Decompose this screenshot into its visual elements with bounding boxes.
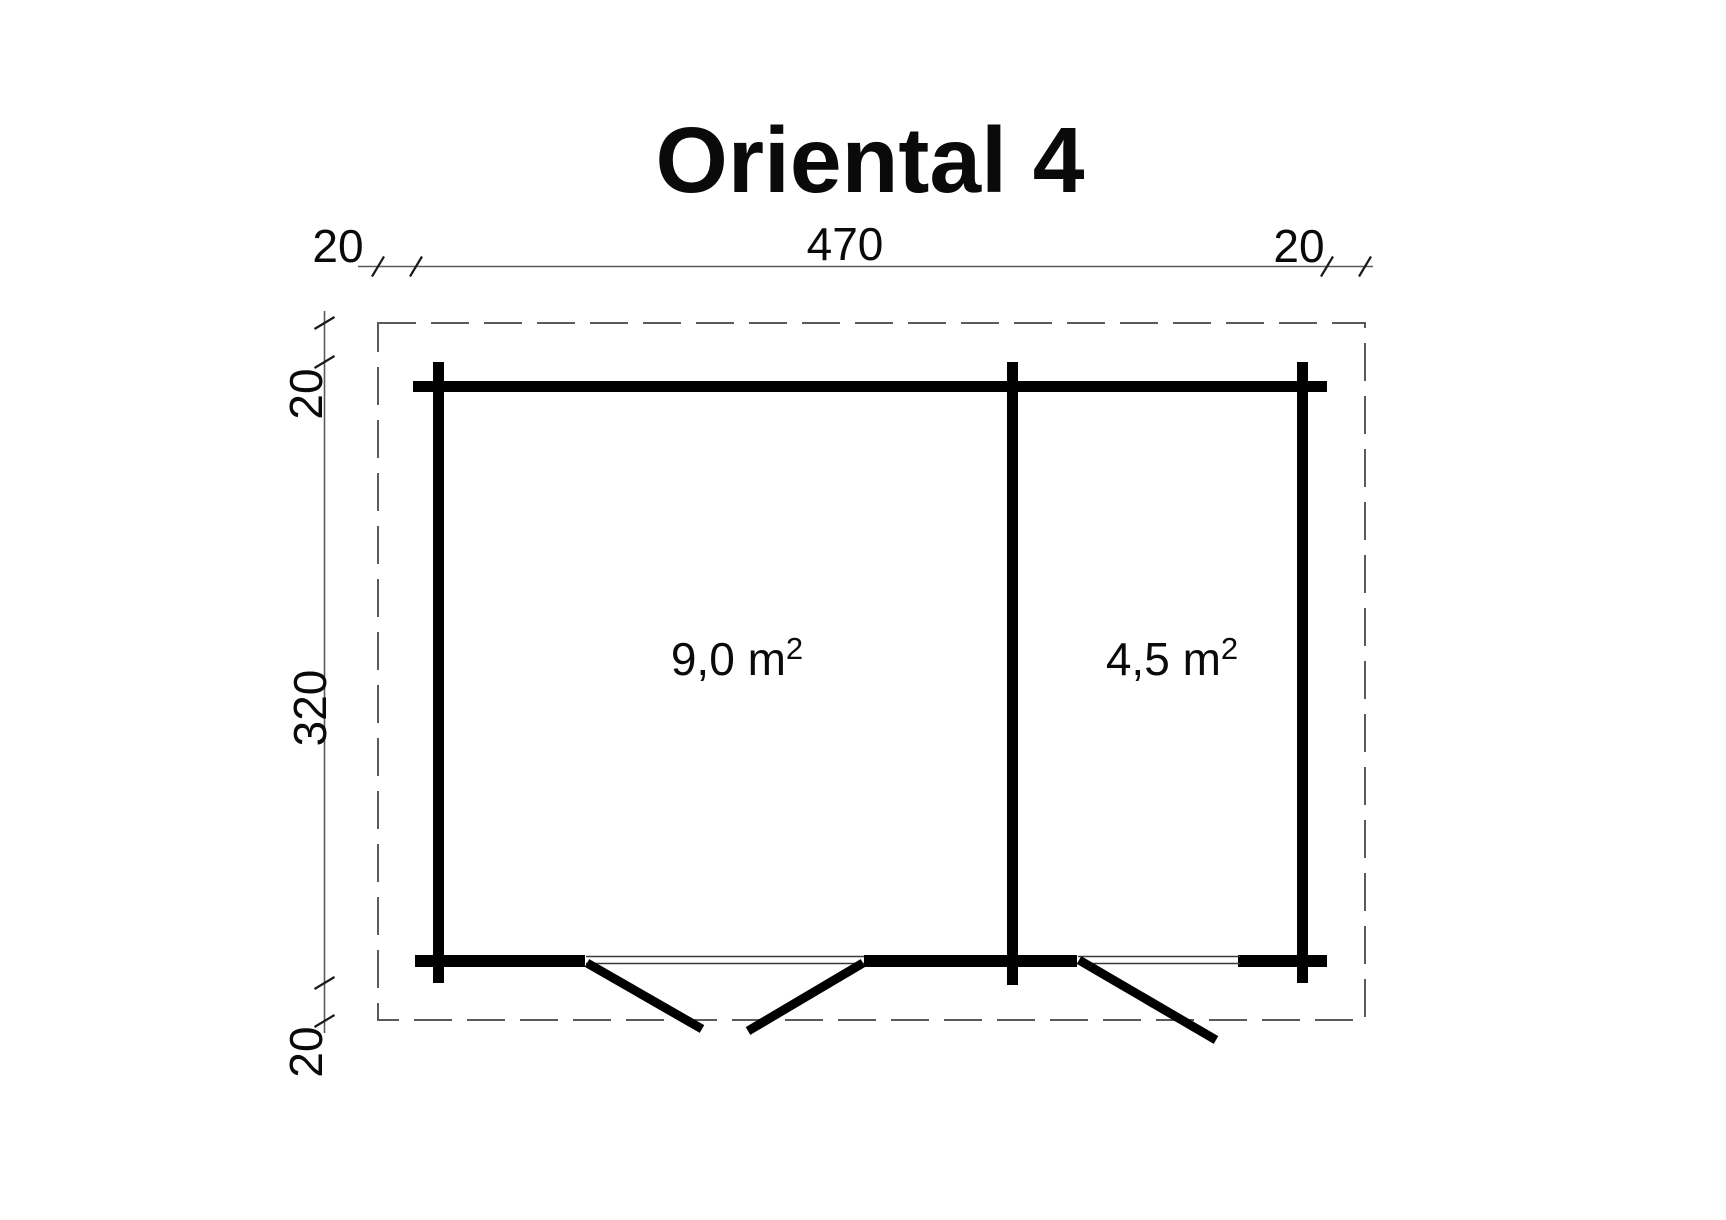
wall-right [1297,362,1308,983]
dim-label-side-bottom-offset: 20 [280,1026,332,1077]
dim-label-top-left-offset: 20 [312,220,363,272]
partition-wall [1007,362,1018,985]
page-title: Oriental 4 [656,108,1085,212]
dim-label-top-width: 470 [807,218,884,270]
room-area-superscript: 2 [786,631,803,666]
room-area-value: 9,0 m [671,633,786,685]
wall-bottom-left-segment [415,955,585,967]
dim-label-side-height: 320 [284,670,336,747]
wall-bottom-right-segment [1238,955,1327,967]
wall-left [433,362,444,983]
double-door-threshold [586,957,864,964]
wall-top [413,381,1327,392]
single-door-threshold [1078,957,1240,964]
floorplan-page: Oriental 4 20 470 20 20 320 20 [0,0,1726,1220]
room-area-value: 4,5 m [1106,633,1221,685]
dim-label-side-top-offset: 20 [280,368,332,419]
room-area-label-main: 9,0 m2 [671,631,803,685]
dim-label-top-right-offset: 20 [1273,220,1324,272]
floorplan-canvas: Oriental 4 20 470 20 20 320 20 [0,0,1726,1220]
wall-bottom-middle-segment [864,955,1077,967]
room-area-label-side: 4,5 m2 [1106,631,1238,685]
room-area-superscript: 2 [1221,631,1238,666]
single-door-leaf [1079,960,1216,1040]
